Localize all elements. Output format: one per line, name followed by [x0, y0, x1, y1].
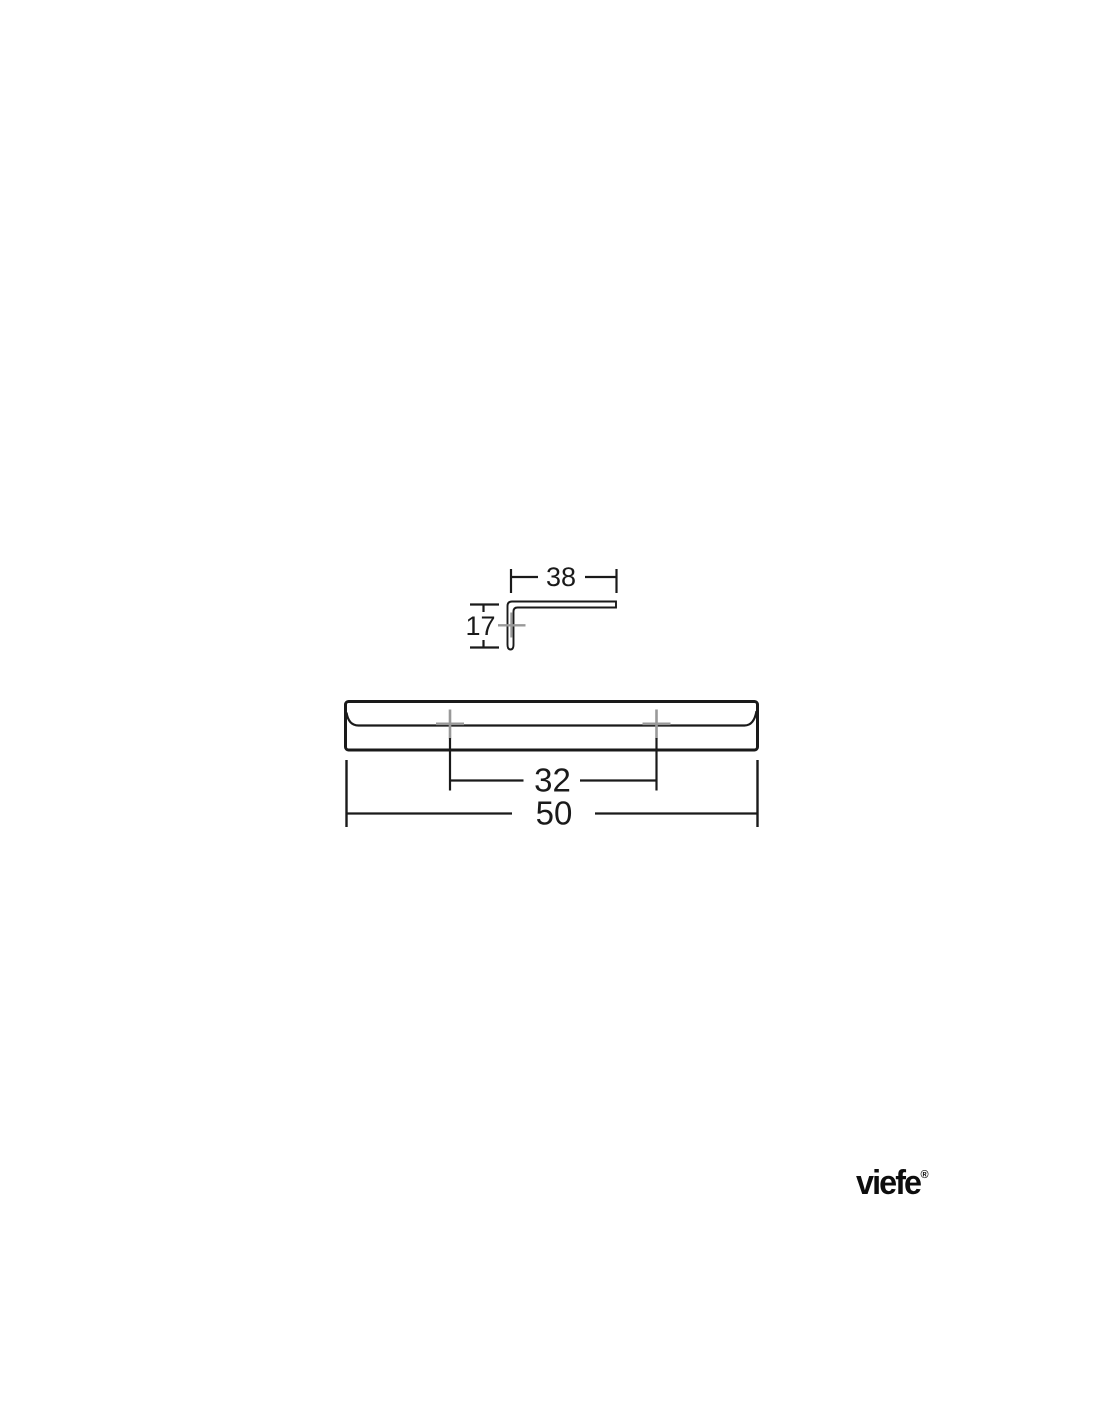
- drawing-page: 38 17: [0, 0, 1100, 1422]
- front-view: 32 50: [346, 702, 758, 832]
- center-mark-icon: [498, 613, 526, 638]
- dimension-profile-height: 17: [465, 605, 499, 648]
- profile-side-view: 38 17: [465, 562, 616, 650]
- brand-wordmark: viefe: [856, 1164, 920, 1203]
- dimension-label-hole-spacing: 32: [534, 762, 571, 799]
- registered-trademark-icon: ®: [921, 1169, 929, 1181]
- dimension-label-profile-height: 17: [465, 611, 495, 641]
- dimension-label-flange-width: 38: [546, 562, 576, 592]
- technical-drawing: 38 17: [0, 0, 1100, 1422]
- dimension-label-total-length: 50: [536, 795, 573, 832]
- brand-logo: viefe®: [856, 1164, 932, 1203]
- dimension-flange-width: 38: [511, 562, 617, 593]
